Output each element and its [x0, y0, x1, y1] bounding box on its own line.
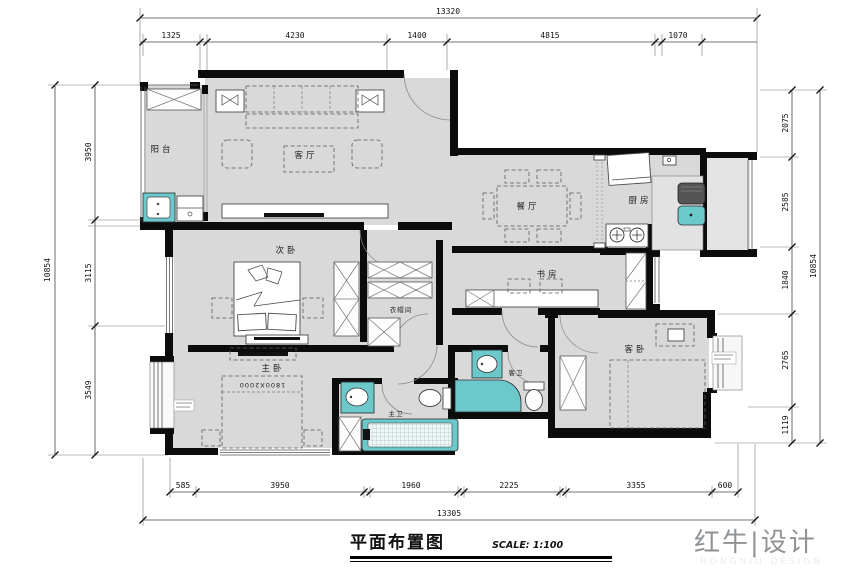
dim-right-total: 10854 [809, 254, 818, 278]
label-kitchen: 厨房 [628, 195, 651, 206]
toilet-bowl [419, 390, 441, 407]
dim-left-3: 3549 [84, 380, 93, 399]
brand-logo: 红牛|设计 HONGNIU DESIGN [694, 522, 844, 567]
stove [606, 224, 648, 247]
dim-bottom-5: 3355 [626, 481, 645, 490]
dimension-bottom: 585 3950 1960 2225 3355 600 13305 [140, 444, 759, 526]
drawing-scale: SCALE: 1:100 [492, 540, 563, 551]
dim-bottom-3: 1960 [401, 481, 420, 490]
label-balcony: 阳台 [150, 144, 173, 155]
dim-top-2: 4230 [285, 31, 304, 40]
shower [455, 380, 521, 412]
dim-bottom-2: 3950 [270, 481, 289, 490]
kitchen-sink-drainer [678, 183, 705, 204]
dim-left-1: 3950 [84, 142, 93, 161]
dim-top-total: 13320 [436, 7, 460, 16]
floorplan-drawing: 13320 1325 4230 1400 4815 1070 10854 [0, 0, 860, 580]
label-guest-bedroom: 客卧 [624, 344, 647, 355]
baywindow-note-master [174, 400, 194, 411]
baywindow-note-guest [712, 352, 736, 364]
drawing-title: 平面布置图 [350, 528, 445, 553]
label-bedroom2: 次卧 [275, 245, 298, 256]
label-master-bath: 主卫 [389, 409, 404, 418]
toilet-bowl [526, 390, 543, 411]
dimension-right: 2075 2585 1840 2765 1119 10854 [715, 87, 827, 447]
label-guest-bath: 客卫 [509, 368, 524, 377]
title-underline [350, 556, 612, 562]
dim-right-3: 1840 [781, 270, 790, 289]
toilet-tank [524, 382, 544, 390]
dim-right-4: 2765 [781, 350, 790, 369]
dim-left-total: 10854 [43, 258, 52, 282]
dim-bottom-1: 585 [176, 481, 191, 490]
toilet-tank [443, 388, 451, 409]
master-bed-size: 1800X2000 [239, 381, 286, 389]
tub-faucet [363, 429, 370, 440]
tv [264, 213, 324, 217]
dim-right-2: 2585 [781, 192, 790, 211]
floorplan-page: 13320 1325 4230 1400 4815 1070 10854 [0, 0, 860, 580]
label-study: 书房 [536, 269, 559, 280]
label-master: 主卧 [261, 363, 284, 374]
dim-left-2: 3115 [84, 263, 93, 282]
fridge [607, 153, 651, 186]
brand-logo-en: HONGNIU DESIGN [700, 557, 844, 567]
dim-right-1: 2075 [781, 113, 790, 132]
label-living: 客厅 [294, 150, 317, 161]
dim-top-5: 1070 [668, 31, 687, 40]
brand-logo-cn: 红牛|设计 [694, 522, 844, 559]
label-dining: 餐厅 [516, 202, 539, 212]
dim-top-4: 4815 [540, 31, 559, 40]
dim-bottom-4: 2225 [499, 481, 518, 490]
dim-right-5: 1119 [781, 415, 790, 434]
dim-bottom-6: 600 [718, 481, 733, 490]
dim-bottom-total: 13305 [437, 509, 461, 518]
title-block: 平面布置图 SCALE: 1:100 [350, 528, 650, 562]
label-cloakroom: 衣帽间 [390, 305, 413, 314]
dim-top-3: 1400 [407, 31, 426, 40]
dim-top-1: 1325 [161, 31, 180, 40]
